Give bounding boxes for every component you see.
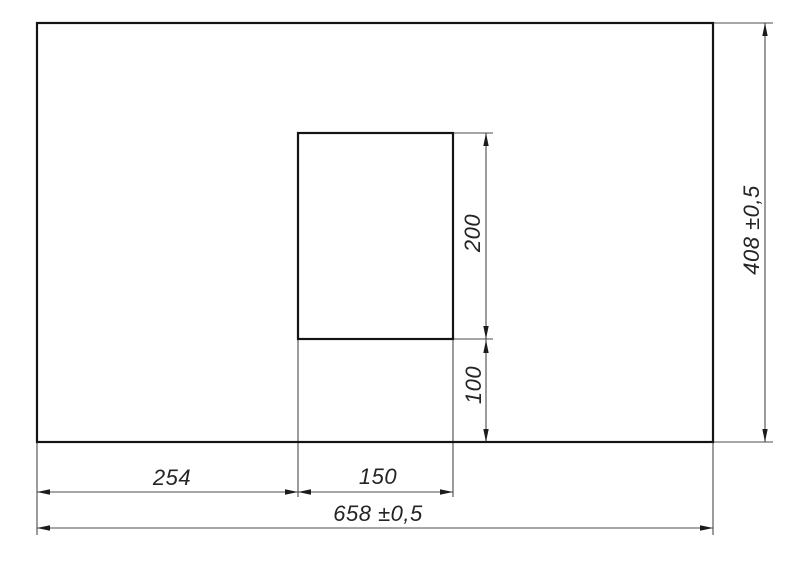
arrowhead-left-offset-left [37,489,50,494]
technical-drawing [0,0,800,577]
arrowhead-right-total-width [700,525,713,530]
dimension-label-total-height: 408 ±0,5 [739,185,765,274]
drawing-canvas: 254 150 658 ±0,5 200 100 408 ±0,5 [0,0,800,577]
arrowhead-left-total-width [37,525,50,530]
arrowhead-down-total-height [762,429,767,442]
dimension-label-cutout-height: 200 [460,214,486,252]
arrowhead-up-offset-bottom [483,340,488,353]
dimension-label-offset-bottom: 100 [461,366,487,404]
arrowhead-up-total-height [762,23,767,36]
arrowhead-right-offset-left [285,489,298,494]
dimension-label-offset-left: 254 [153,465,191,491]
arrowhead-down-offset-bottom [483,429,488,442]
plate-outline [37,23,713,442]
dimension-label-cutout-width: 150 [359,464,397,490]
arrowhead-up-cutout-height [483,133,488,146]
cutout-outline [298,133,453,339]
arrowhead-right-cutout-width [440,489,453,494]
arrowhead-down-cutout-height [483,326,488,339]
arrowhead-left-cutout-width [298,489,311,494]
dimension-label-total-width: 658 ±0,5 [333,501,422,527]
